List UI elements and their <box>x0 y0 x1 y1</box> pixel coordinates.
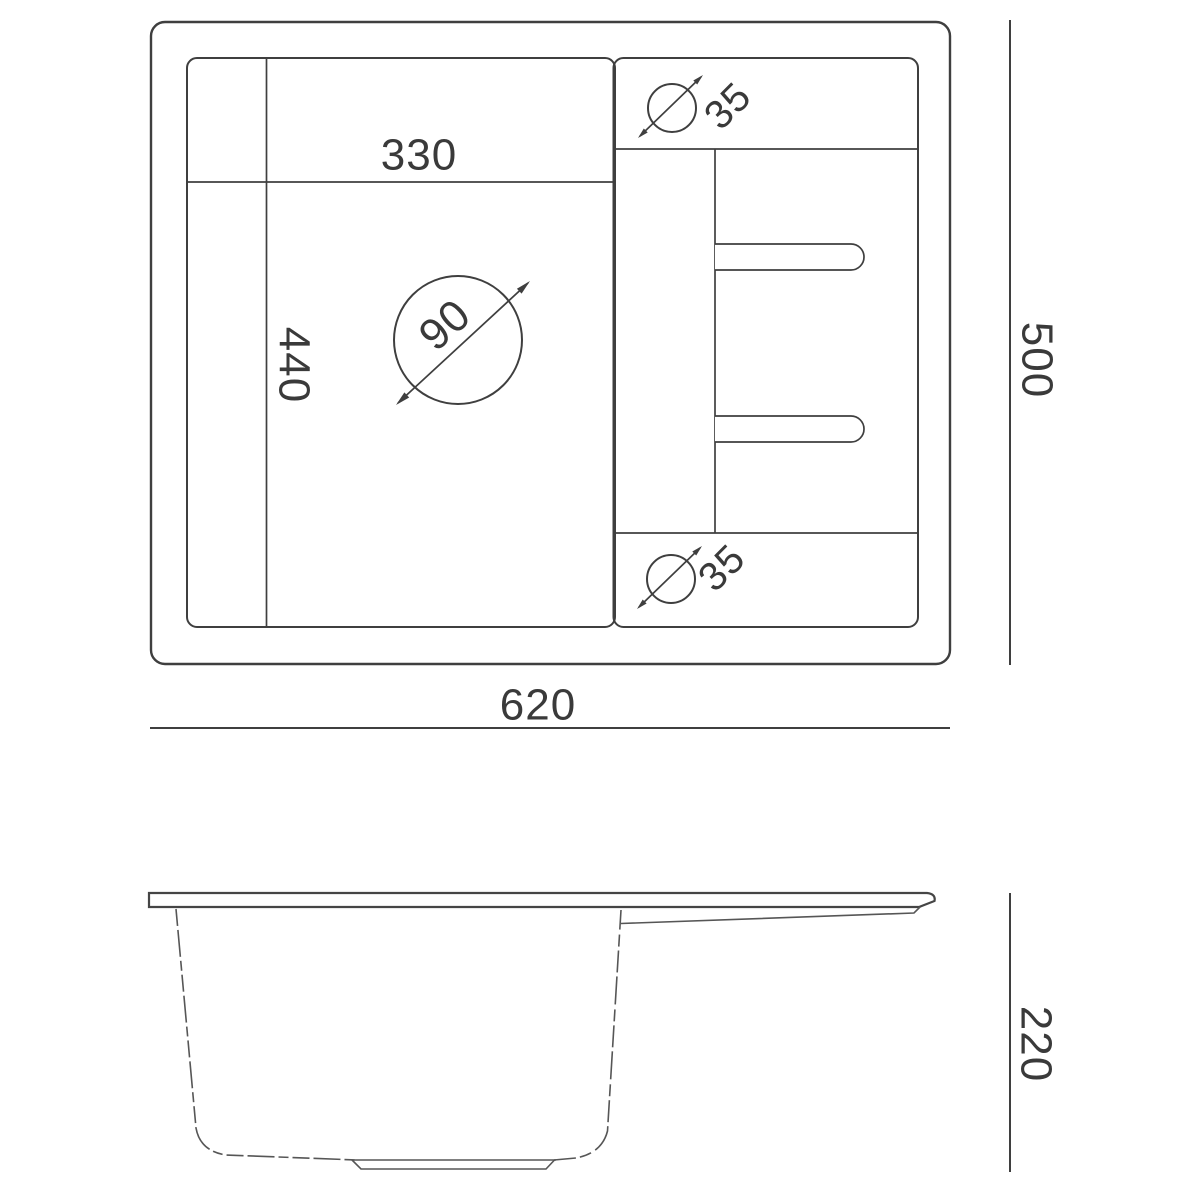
overall-width-label: 620 <box>500 681 576 730</box>
tap-hole-bottom-label: 35 <box>690 536 754 600</box>
sink-dimension-diagram: 330 440 90 35 35 620 500 220 <box>0 0 1200 1200</box>
dimension-lines <box>150 20 1010 1172</box>
tap-hole-bottom-slash <box>639 548 700 607</box>
drainboard-groove-bottom <box>715 416 864 442</box>
bowl-width-label: 330 <box>381 131 457 180</box>
tap-hole-top-circle <box>648 84 696 132</box>
drawing-svg: 330 440 90 35 35 620 500 220 <box>0 0 1200 1200</box>
tap-hole-bottom-circle <box>647 555 695 603</box>
overall-depth-label: 500 <box>1013 322 1062 398</box>
drain-diameter-line <box>398 283 528 403</box>
bowl-depth-label: 440 <box>270 327 319 403</box>
side-bowl-right-wall <box>554 910 621 1160</box>
drainboard-outline <box>614 58 919 627</box>
tap-hole-top-label: 35 <box>696 74 760 138</box>
side-view <box>149 893 935 1169</box>
side-bowl-left-wall <box>176 909 357 1160</box>
side-drain-foot <box>352 1160 555 1169</box>
side-drainboard-line <box>621 907 920 924</box>
tap-hole-top-slash <box>640 77 701 136</box>
dimension-labels: 330 440 90 35 35 620 500 220 <box>270 74 1062 1082</box>
drainboard-groove-top <box>715 244 864 270</box>
bowl-height-label: 220 <box>1012 1006 1061 1082</box>
side-rim-profile <box>149 893 935 907</box>
drain-diameter-label: 90 <box>410 290 481 361</box>
